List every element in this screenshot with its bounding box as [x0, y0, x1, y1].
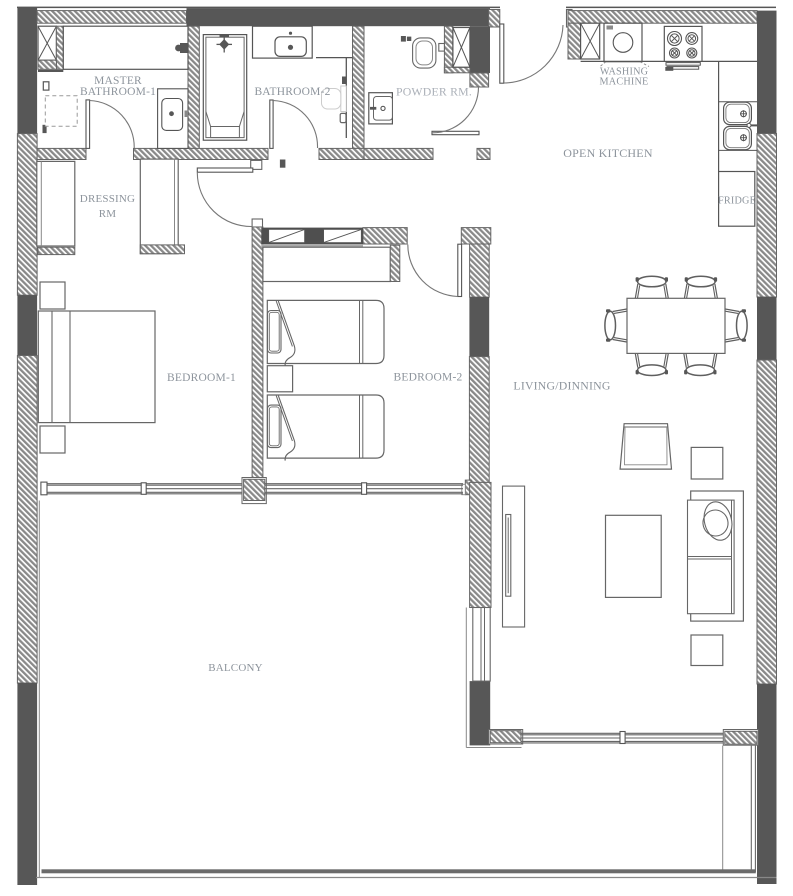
- svg-text:BATHROOM-2: BATHROOM-2: [254, 86, 330, 98]
- svg-text:MACHINE: MACHINE: [600, 77, 649, 88]
- svg-text:FRIDGE: FRIDGE: [718, 196, 756, 207]
- svg-text:RM: RM: [99, 208, 117, 220]
- svg-text:BATHROOM-1: BATHROOM-1: [80, 86, 156, 98]
- svg-text:POWDER RM.: POWDER RM.: [396, 85, 472, 99]
- svg-text:BALCONY: BALCONY: [208, 662, 263, 674]
- svg-text:LIVING/DINNING: LIVING/DINNING: [513, 379, 610, 393]
- svg-text:BEDROOM-2: BEDROOM-2: [394, 372, 463, 384]
- svg-text:OPEN KITCHEN: OPEN KITCHEN: [563, 146, 653, 160]
- svg-text:BEDROOM-1: BEDROOM-1: [167, 372, 236, 384]
- svg-text:DRESSING: DRESSING: [80, 193, 135, 205]
